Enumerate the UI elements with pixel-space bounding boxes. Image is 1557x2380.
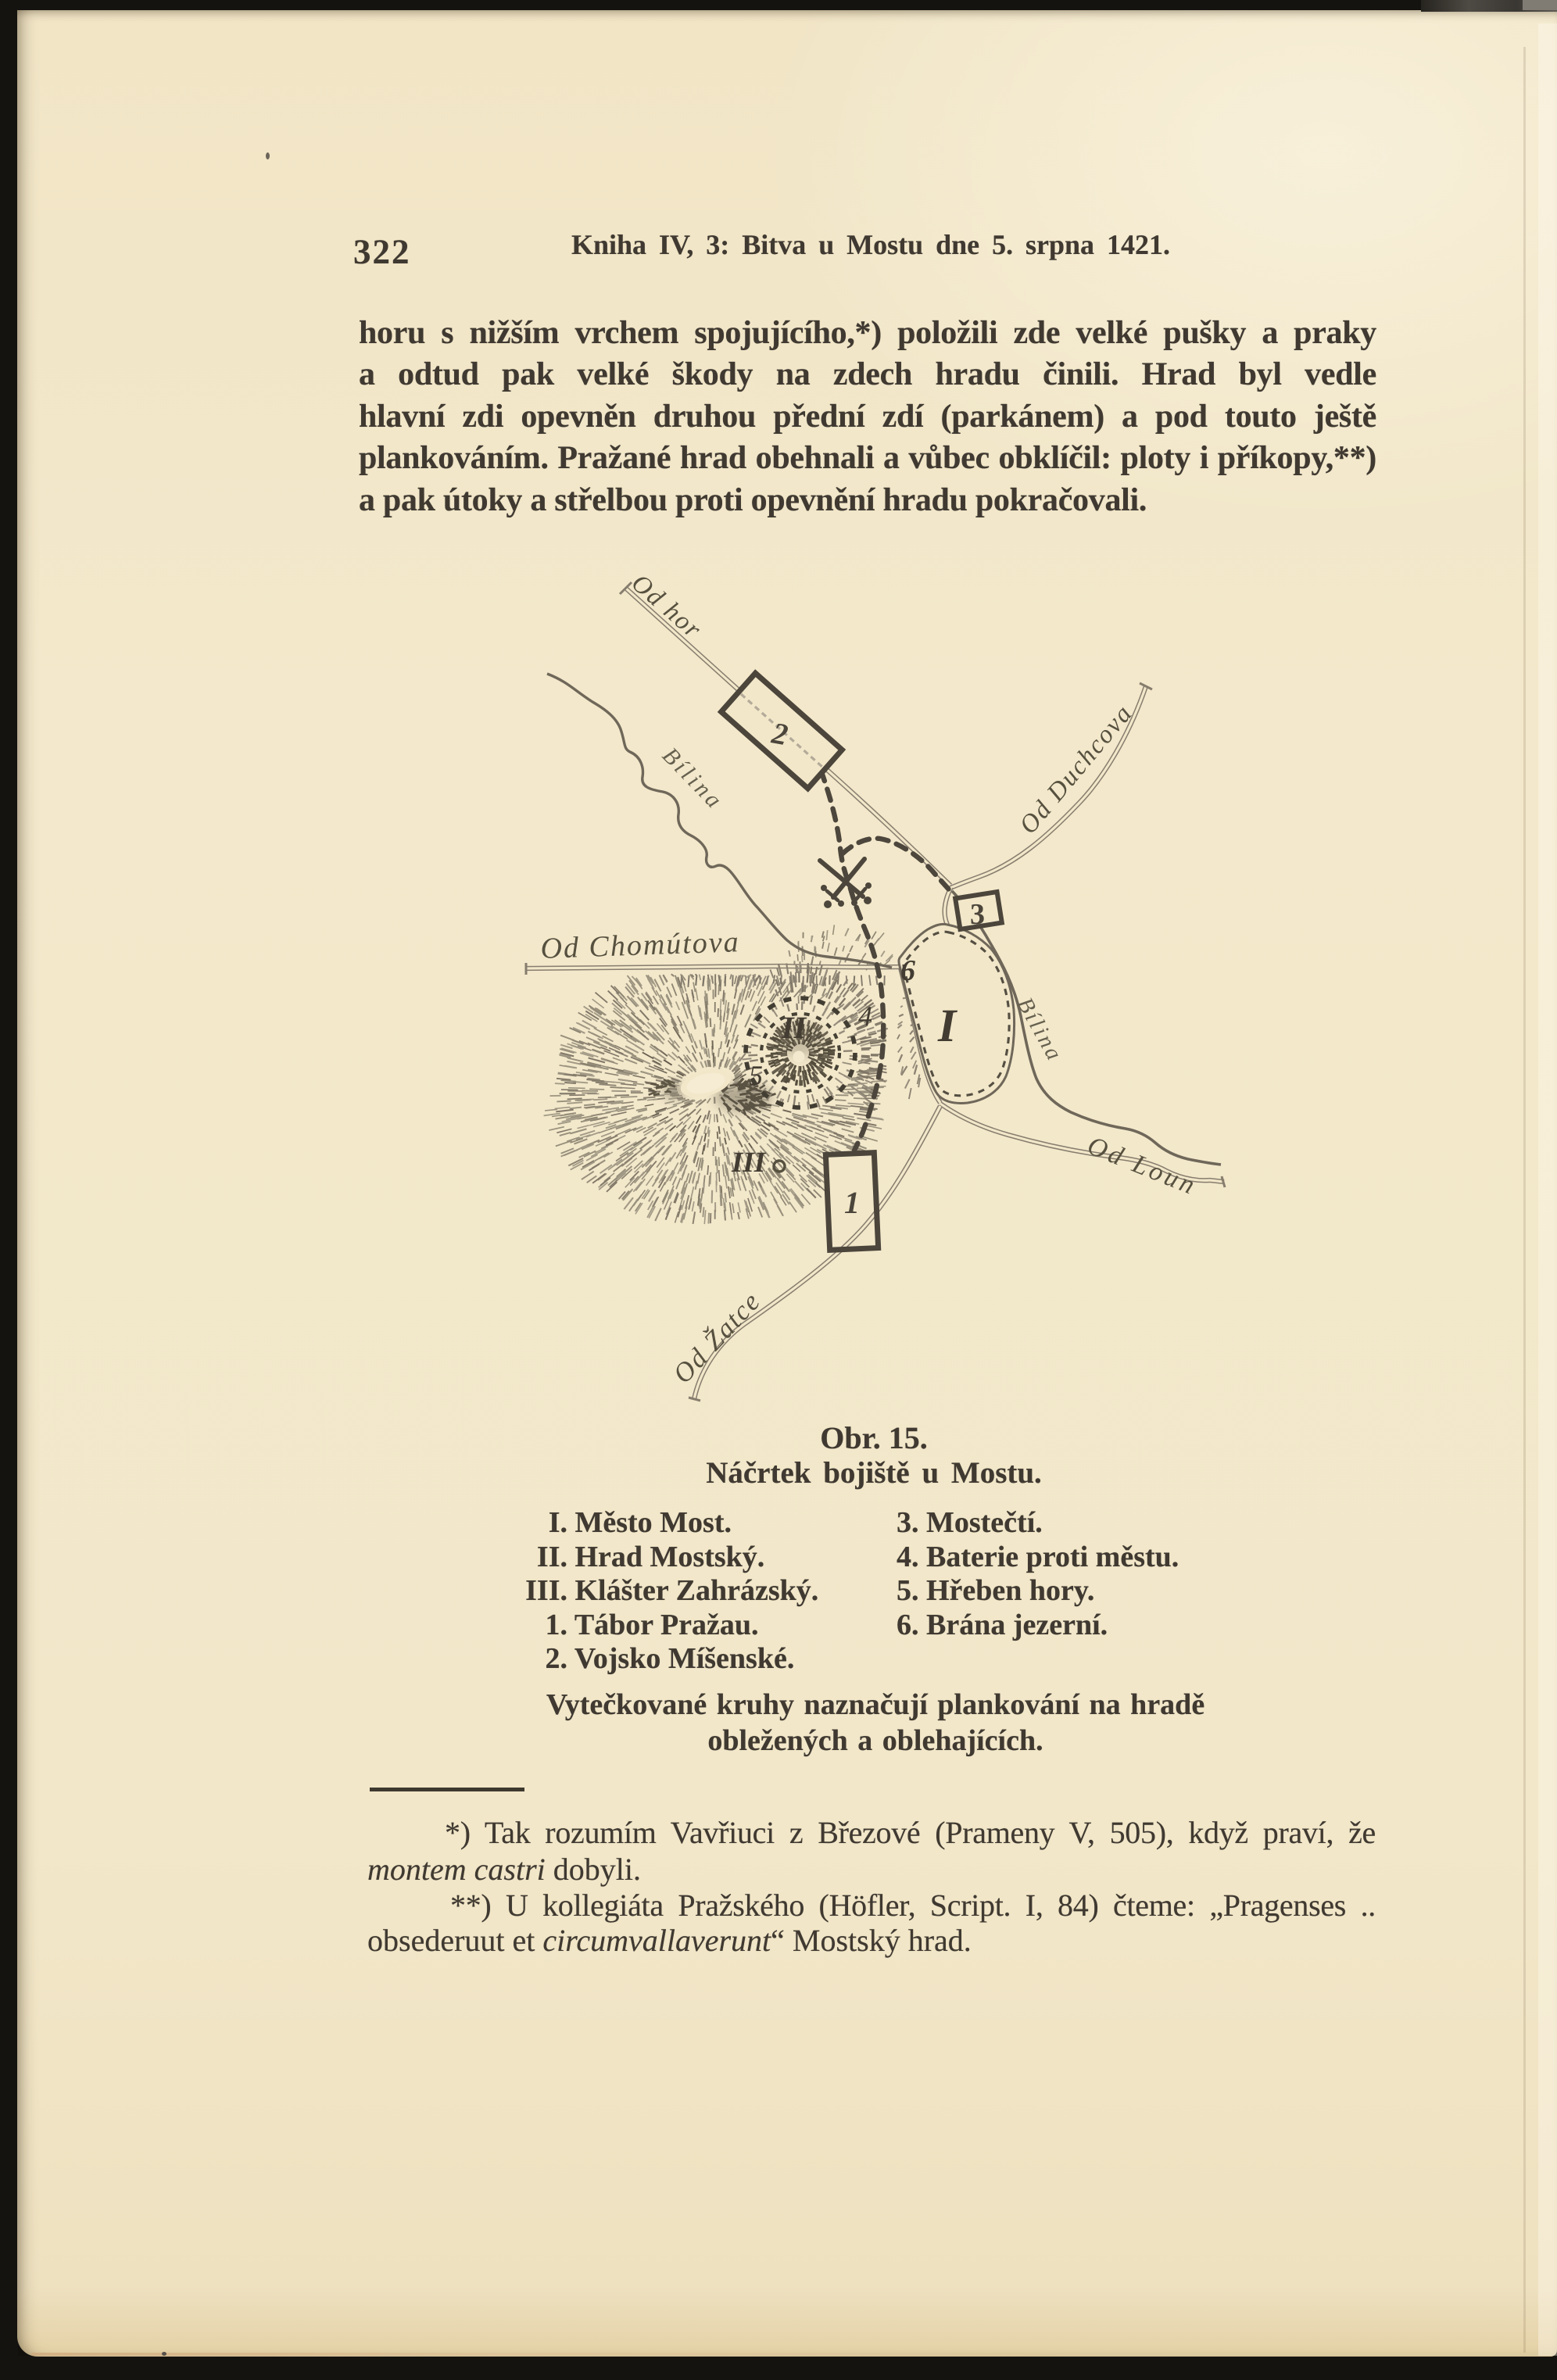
svg-text:1: 1 [844,1185,860,1220]
svg-text:3: 3 [970,898,985,931]
svg-text:Od Žatce: Od Žatce [667,1286,767,1390]
svg-text:Od Duchcova: Od Duchcova [1015,699,1139,839]
svg-text:Od hor: Od hor [626,571,707,645]
svg-text:Od Chomútova: Od Chomútova [540,925,740,965]
svg-text:Od Loun: Od Loun [1083,1131,1201,1201]
svg-text:Bílina: Bílina [657,743,728,815]
svg-text:II: II [781,1010,807,1045]
svg-text:Bílina: Bílina [1012,993,1068,1066]
svg-text:5: 5 [749,1060,763,1091]
svg-text:4: 4 [858,1000,872,1032]
svg-text:I: I [937,1000,958,1051]
svg-text:III: III [731,1147,767,1179]
svg-text:6: 6 [900,954,915,987]
